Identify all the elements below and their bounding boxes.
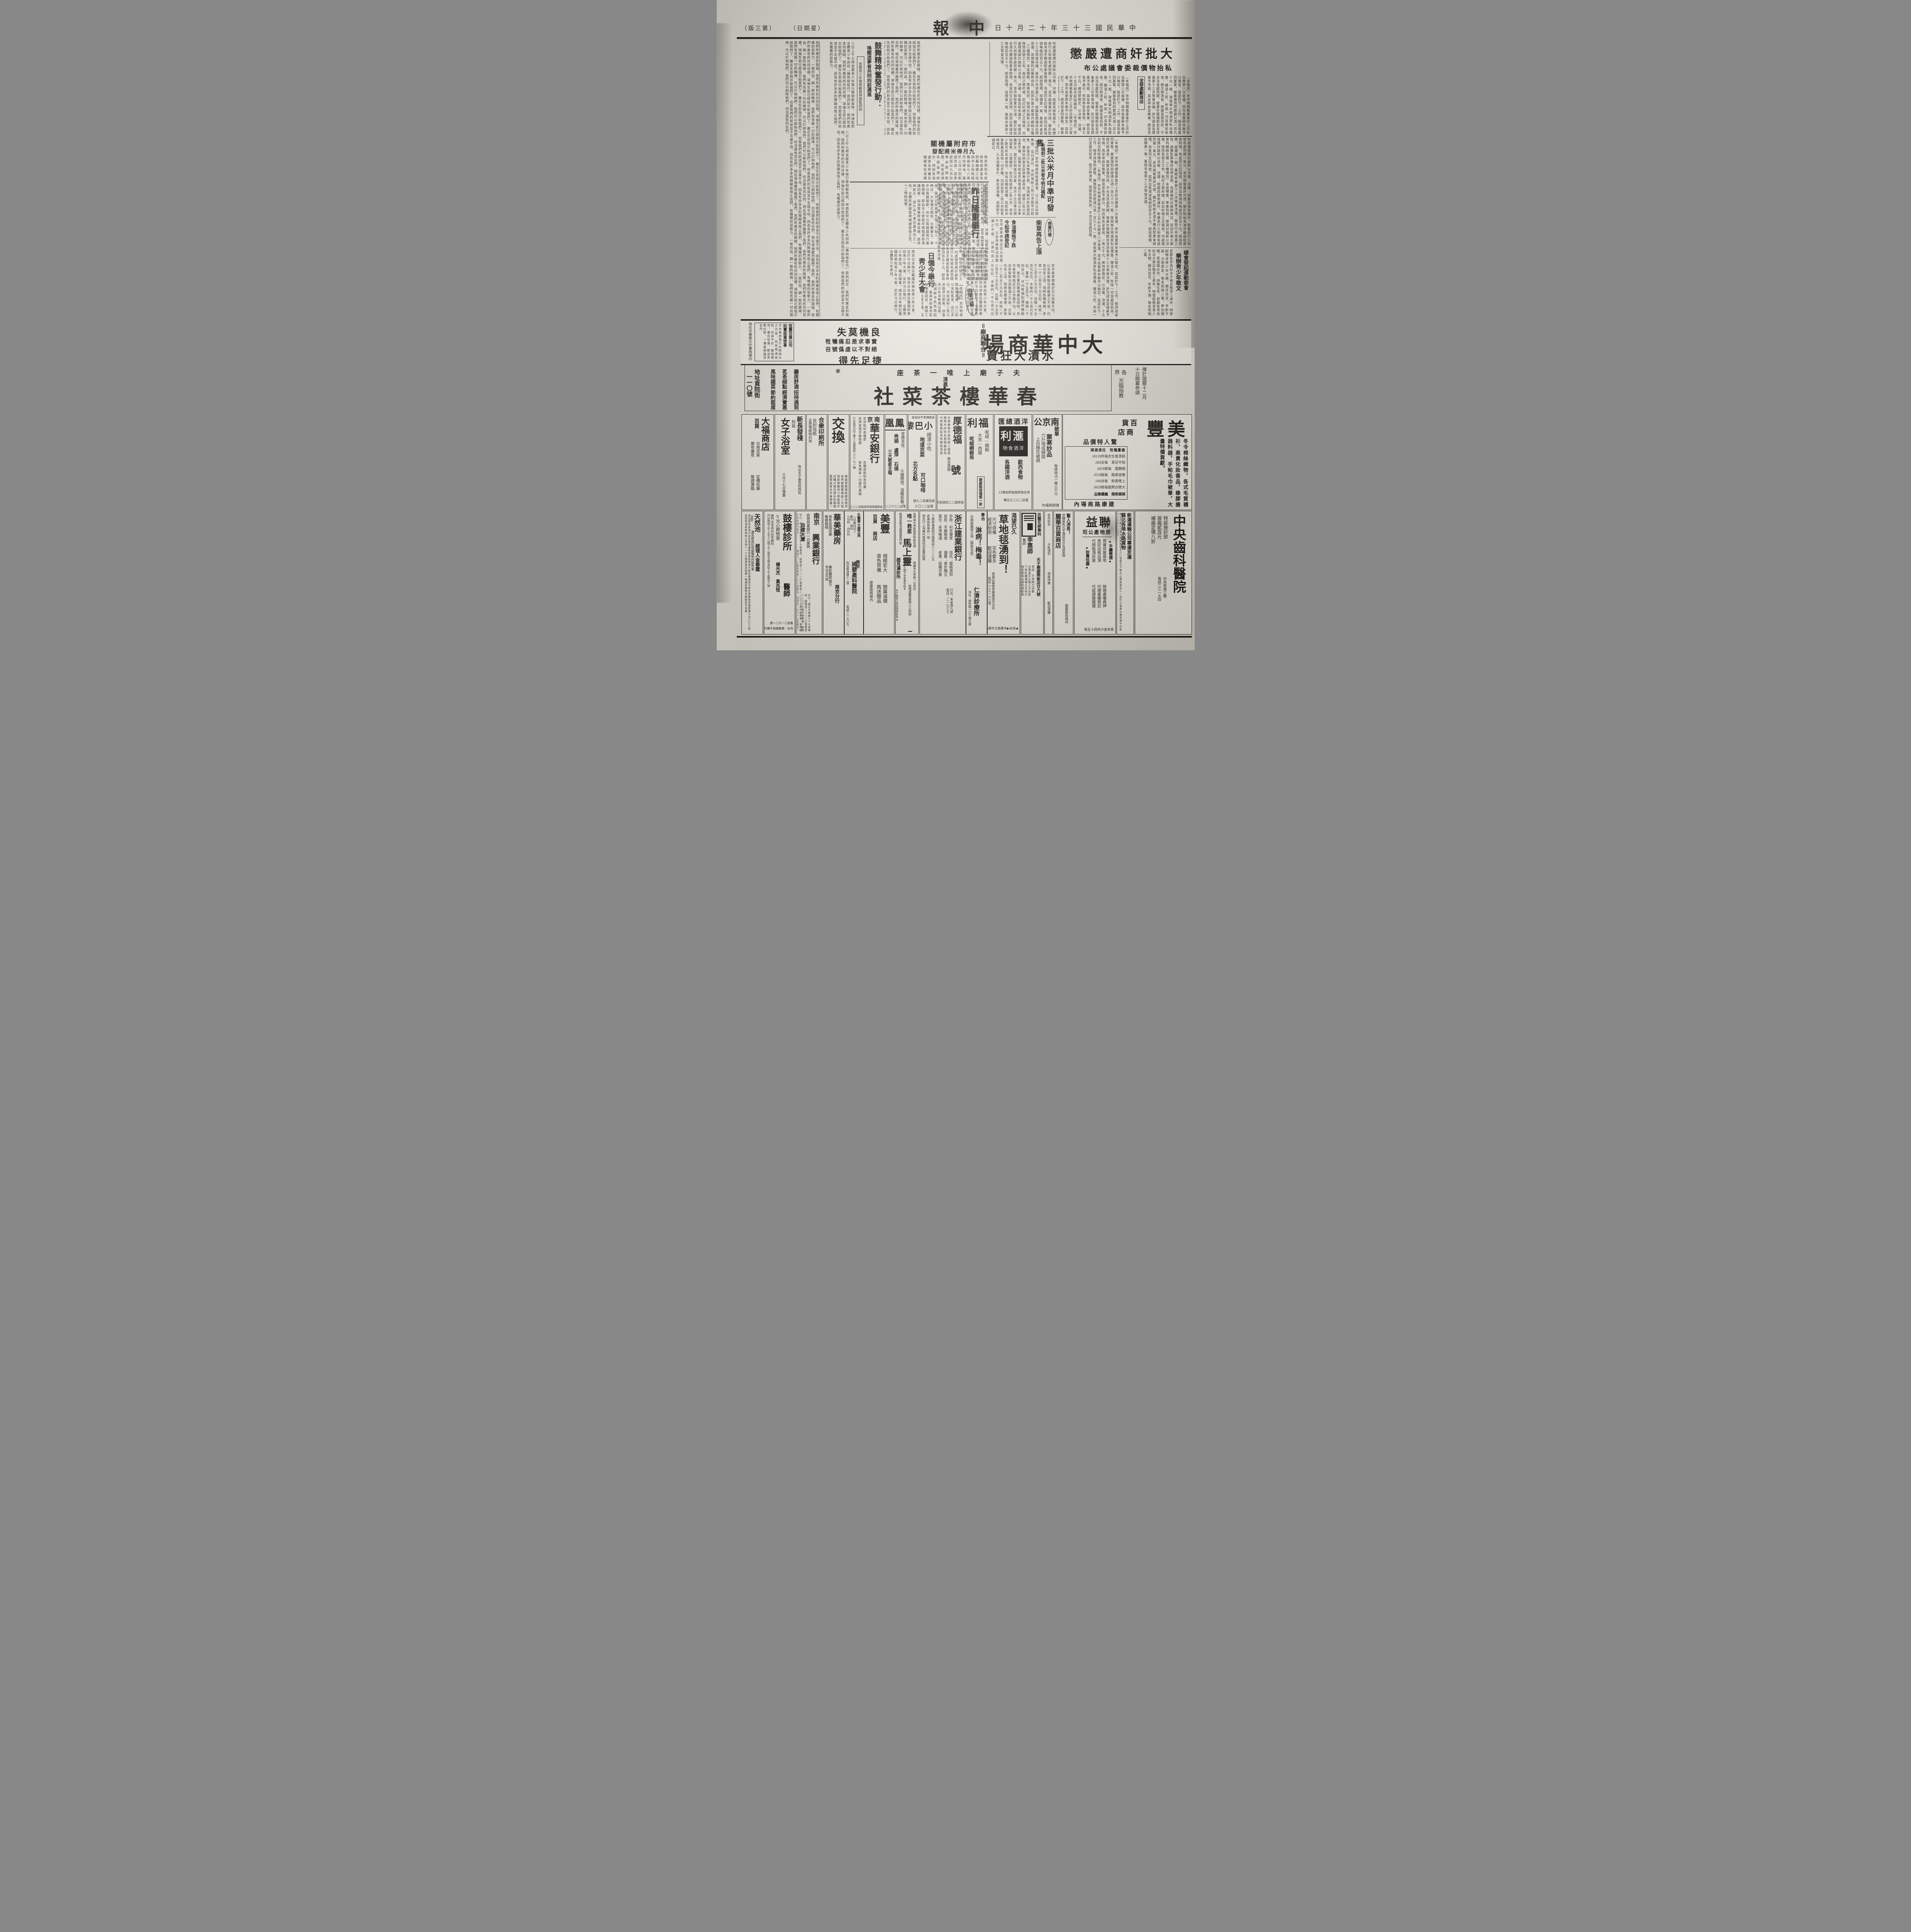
side-kicker: 瘰癧鼠瘡濕毒腫瘡專門家 [899, 513, 903, 555]
ad-line: 大批湧到 [1047, 543, 1051, 570]
ad-xinchangfa: 新長發棧 附設 女子浴室 地址夫子廟貢院西街 十月十七日復業 [775, 414, 806, 510]
ad-address: 建康路商場內 [1064, 604, 1069, 631]
ad-line: 支票簿廢物利用 [808, 418, 813, 480]
ad-line: 大衣—西服 [977, 433, 983, 476]
article-hangqing: 商業行情 柴草再告上漲 食油價格下跌 今起申請登記 京市柴草價格近日以供應不均、… [990, 217, 1056, 317]
article-body: 首都各界爲紀念大東亞戰爭三週年、特發起徵求靑少年文稿、題目自定、年齡不論、文明愛… [1121, 249, 1173, 316]
ad-title: 合衆印刷所 [817, 417, 825, 471]
ad-dafu: 大福商店 百貨 日用百貨 應有盡有 定價低廉 敬請惠臨 [741, 414, 774, 510]
ad-branch-2: 倉庫船板巷四一號 [927, 514, 931, 576]
ad-notice: 遺失原登記收據聲明作廢啓事 [751, 531, 755, 588]
ad-line: 存款：利息優厚 [948, 514, 953, 549]
ad-doctors: 楊光杰 黃兆恆 [775, 562, 781, 612]
ad-line: 匯兌：各埠暢通 [937, 514, 942, 549]
ad-branch-3: 總支行上海蘇州無錫杭州嘉興紹興 [922, 514, 926, 630]
ad-tel: 電話：二一九三七 [946, 588, 950, 631]
ad-meifeng: 美豐 百貨 商店 冬令棉絲織物，各式毛質襪衫，高貴化妝香品，橡膠搪器料器，手帕毛… [1063, 414, 1192, 510]
ad-line: 地道京菜 [918, 437, 926, 468]
ad-address: 貢院東街二九號 [913, 499, 935, 503]
ad-address: 南京金沙井四十五號 [1084, 627, 1114, 632]
ad-tel: 電話二三六三二轉 [885, 504, 906, 509]
ad-line: 日用百貨 [755, 442, 760, 473]
ad-line: 定存款利息優厚 [863, 417, 867, 459]
ad-nanjing-gongsi: 南京公司 被單 禦寒妙品 六斤現成綢面 上白棉花被頭 每條特沽一萬六千元 復興商… [1033, 414, 1062, 510]
ad-sub: 百貨 [872, 514, 879, 530]
subheadline: 未領到二批公米者今明日補配 [1040, 143, 1046, 213]
side-line: ▲婦女久病不孕負責安胎▼ [903, 558, 907, 608]
ad-title-2: 號 [948, 465, 962, 480]
ad-zhongyang-dental: 中央齒科醫院 特設施診部 拔齒貳百元 補齒定價八折 中央商場三樓 電話二三一五四 [1135, 511, 1192, 634]
price-line: 嫣蘭霜 每瓶$180. [1097, 466, 1125, 471]
ink-smudge [717, 23, 732, 603]
ad-title: 新運運輸公司專運京滬 [1126, 513, 1133, 629]
ad-gulou: 鼓樓診所 X光心肺檢查 專門主治內外兒花柳科 楊光杰 黃兆恆 醫師 門診時間上午… [764, 511, 795, 634]
ad-mashangling: 風寒麻木骨節酸疼腎虧各病 唯一救星 馬上靈 無論多大疼痛一付見好 經理處豐富路三… [895, 511, 919, 634]
ad-line: 登記出租出頂 [1096, 539, 1102, 582]
ad-hours: 門診時間上午十至十二時下午二時至五時出診下午五時至八時 [767, 514, 771, 611]
ad-doctors-title: 醫師 [782, 583, 792, 606]
ad-sub: 房地產公司 [1082, 528, 1111, 537]
ad-sub-2: 商店 [1118, 427, 1135, 437]
ad-title: 鼓樓診所 [780, 514, 793, 579]
ad-title: 福利 [967, 415, 990, 430]
ad-sub: 南京分行 [834, 585, 841, 627]
ad-address: 地址：國府路一〇三號大廈 [968, 591, 972, 632]
ad-kicker: 民醫花柳專科 [1036, 513, 1042, 555]
feature-1: 廳房舒適 [792, 369, 800, 389]
price-line: 美容香脂 每瓶$150. [1093, 472, 1125, 477]
mid-body-2: 【本報訊】京市物資配給委員會、以二批公米配售後、迄已多日、市民亟盼三批公米能早日… [921, 283, 963, 317]
open-note-4: 光臨指教 [1117, 378, 1125, 409]
ad-address: 地址復興路復興商場口 [999, 490, 1030, 495]
bottom-rule [737, 636, 1192, 638]
ad-kicker: 專治 [979, 513, 985, 526]
ad-line: 地址夫子廟貢院西街 [797, 465, 802, 507]
ad-address-2: 倉庫鐵管巷四號電話二二三七三九 [850, 505, 883, 509]
ad-line: 醫療器械 [824, 515, 829, 561]
ad-title: 交換 [828, 417, 847, 475]
ad-line: 各色秋貨 [1047, 514, 1051, 541]
ad-line: 北方名點 [911, 461, 919, 492]
ad-title: 厚德福 [950, 416, 963, 459]
article-decisions: 何處理提請討論新公決案、決議：除勗昌號免議外、新豐商行久和號各處罰鍰一萬元、並吊… [990, 42, 1056, 135]
ad-line: 開幕減價 [882, 585, 889, 612]
ad-sub: 浴堂 [750, 515, 754, 527]
ad-city: 南京 [811, 513, 820, 532]
ad-note: 火爐開放，溫暖如春。 [899, 469, 904, 507]
article-body: 京市柴草價格近日以供應不均、以及各柴販沿途搬運之不易、日來均告上漲、現時各種柴價… [990, 264, 1055, 316]
subheadline: 喚醒迷夢者共同向前邁進 [866, 46, 873, 127]
page-weekday: （星期日） [790, 24, 825, 32]
essay-column-2: 八日上午七時首都靑少年舉行黎明動員時、林總監對全體靑少年訓話（鍾劍總監代）原詞如… [820, 131, 849, 317]
feature-4: 經濟實惠 [781, 390, 788, 410]
ad-sub: 百貨 [753, 418, 760, 438]
ad-line: 貨色齊備 [876, 554, 882, 581]
ad-address: 經理處豐富路三三四號 [908, 585, 912, 632]
ad-kicker: 被單 [1053, 426, 1060, 446]
ad-line: 每條特沽一萬六千元 [1054, 464, 1059, 499]
notice-title-2: 拍賣底貨啓事 [782, 324, 787, 360]
right-body-2: 何處理提請討論新公決案、決議：除勗昌號免議外、新豐商行久和號各處罰鍰一萬元、並吊… [1119, 138, 1191, 246]
side-title: 趙見濤診所 [895, 558, 901, 588]
ad-minyi: 民醫花柳專科 李惠師 醫師 夫子廟國際飯店廿六號 保證 不用開刀消散 白濁當日止… [1021, 511, 1044, 634]
ad-line: X光心肺檢查 [775, 514, 781, 557]
article-guwu: 鼓舞精神奮發行動： 喚醒迷夢者共同向前邁進 ·首都靑少年黎明動員林總監訓話· 八… [820, 41, 884, 129]
article-zhengwen: 總會發起運動委會 樂辦靑少年徵文 首都各界爲紀念大東亞戰爭三週年、特發起徵求靑少… [1119, 247, 1191, 317]
article-body: 八日上午七時首都靑少年舉行黎明動員時、林總監對全體靑少年訓話（鍾劍總監代）原詞如… [821, 42, 855, 128]
ad-xinyun: 新運運輸公司專運京滬 蘇北各埠水路貨物 總公司鎮江江邊大馬路電話五六〇號南京下關… [1117, 511, 1134, 634]
issue-date: 中華民國三十三年十二月十日 [995, 22, 1141, 32]
ad-line: 定價低廉 [755, 475, 760, 506]
ad-address: 建康路商場內 [869, 581, 874, 631]
ad-kicker: 風寒麻木骨節酸疼腎虧各病 [913, 513, 917, 559]
ad-line: 各國洋酒 [1003, 459, 1011, 486]
ad-line: 買賣房屋基地 [1101, 539, 1107, 582]
ad-title: 美豐 [1147, 415, 1188, 441]
ad-address: 中央商場三樓 [1163, 577, 1168, 623]
price-line: 上等香粉 每合$40. [1095, 478, 1126, 483]
section-rule [850, 182, 989, 182]
ad-address: 行址：朱雀路九號 [950, 588, 954, 631]
ad-title-2: 女子浴室 [778, 418, 791, 472]
ad-title: 草地毯湧到！ [996, 514, 1010, 611]
headline: 大批奸商遭嚴懲 [1070, 44, 1176, 61]
ad-line: 歡迎選購 [1047, 602, 1051, 633]
ad-tianranchi: 天然池 浴堂 經理人金春霆 遺失原登記收據聲明作廢啓事 本堂原有坐落大油坊巷地產… [741, 511, 763, 634]
subheadline-2: 食油價格下跌 [1011, 220, 1017, 255]
subheadline-3: 今起申請登記 [1004, 220, 1010, 255]
ad-qiuhuo: 各色秋貨 大批湧到 價格特廉 歡迎選購 [1044, 511, 1053, 634]
clinic-logo-icon [1022, 513, 1036, 537]
ad-line: 上白棉花被頭 [1035, 437, 1041, 476]
ad-line: 代理產權登記 [1096, 585, 1102, 627]
ad-title: 興業銀行 [810, 534, 821, 599]
ad-maker: 鄧甫記藤柳草器廠南京分店 [991, 572, 996, 630]
ad-title: 大福商店 [759, 417, 771, 479]
ad-tel: 電話二一六二一號 [770, 621, 793, 625]
ad-line: 辦理產權典押 [1101, 585, 1107, 627]
ad-items: 冬令棉絲織物，各式毛質襪衫，高貴化妝香品，橡膠搪器料器，手帕毛巾被單，大量特價貢… [1131, 439, 1189, 507]
ad-title: 華安銀行 [867, 423, 881, 485]
ad-note: 無論多大疼痛一付見好 [913, 561, 917, 608]
headline: 市府附屬機關 [931, 138, 977, 148]
ad-line: 歐西食物 [1017, 459, 1024, 486]
boxed-kicker: ·首都靑少年黎明動員林總監訓話· [857, 56, 864, 125]
ad-title: 美豐 [877, 514, 892, 548]
ad-line: 儲蓄：會計獨立 [942, 551, 948, 585]
ad-houdefu: 厚德福 壽衣壽器 號 本號專營衣衾枕被三朝禮服楠木紗枋名貴壽器茲為大衆服務起見特… [937, 414, 965, 510]
subheadline: 私抬物價裁委會議處公布 [1084, 63, 1173, 72]
article-body: 【本報訊】京市物資配給委員會、以二批公米配售後、迄已多日、市民亟盼三批公米能早日… [990, 138, 1039, 216]
teahouse-title: 春華樓茶菜社 [874, 381, 1045, 410]
ad-line: 價格特廉 [1047, 572, 1051, 599]
price-line: 經濟衛生衣每件$1100. [1092, 454, 1125, 459]
ad-tangzhiying: 女醫學士唐芝英 △診療科目▽ 產科·婦科 小兒科·內外科 南京 婦嬰產科醫院 院… [844, 511, 864, 634]
banner-ad-dazhonghua: ＝廠商聯合＝ 大中華商場 水漬大狂賣 良機莫失 實事求是忍痛犧牲 絕對不以虛僞號… [741, 319, 1191, 365]
ad-line: 倉庫：設備完善 [937, 551, 942, 585]
banner-subtitle: 水漬大狂賣 [986, 346, 1056, 363]
ad-line: 信託：服務週到 [948, 551, 953, 585]
article-gongmi: 三批公米月中準可發售 未領到二批公米者今明日補配 【本報訊】京市物資配給委員會、… [990, 138, 1056, 216]
ad-city: 南京 [867, 415, 881, 423]
ad-body: 本堂原有坐落大油坊巷地產東至趙姓西至大抽坊巷南至汪姓北至楊姓房屋原價六分〇〇三絲… [743, 514, 750, 630]
subheadline: 九月俸米將配發 [932, 148, 976, 155]
article-body: 南京特別市政府各局處會及附屬機關工役與市立各校館職員役七八兩月份俸米、業於上月分… [922, 155, 988, 180]
ad-box-note: 建康路商場第一家 [977, 476, 984, 508]
ad-address: 復興商場內 [1042, 503, 1059, 508]
ad-caoditan: 渴望已久 草地毯湧到！ 尺寸齊備 經濟耐用 花色繁多 歡迎選購 鄧甫記藤柳草器廠… [987, 511, 1020, 634]
ad-tel: 電話二三一五四 [1157, 577, 1162, 623]
banner-catch-1: 良機莫失 [837, 325, 882, 338]
promo-head: 驚人特價品 [1083, 438, 1118, 446]
ad-lianyi: 聯益 房地產公司 ●手續簡捷● 買賣房屋基地 登記出租出頂 代辦租頂房屋 辦理產… [1074, 511, 1116, 634]
teahouse-ad: 擇於國曆十二月 十日開幕恭請 各界 光臨指教 夫子廟上唯一茶座 ❋ 清眞 春華樓… [741, 364, 1191, 412]
ad-kicker: 渴望已久 [1010, 513, 1017, 540]
ad-body: 敝處需舊報紙應用徵求各界惠賜舊報紙三大張當卸寄酬四寸明星照片四種式樣任擇多則類推… [830, 475, 848, 508]
ad-xiaobali: 首都標準平民食堂 小巴黎 經濟小吃 地道京菜 北方名點 可口咖啡 貢院東街二九號… [908, 414, 936, 510]
ad-address: 地址：建鄴路鴿子橋竹竿里九號 [764, 626, 793, 631]
ad-line: 六斤現成綢面 [1040, 433, 1046, 472]
ad-catch: 驚人消息！ [1065, 514, 1071, 552]
ad-line: 應有盡有 [749, 442, 755, 473]
feature-3: 茗茶細點 [781, 369, 788, 389]
ad-line: 特設施診部 [1163, 516, 1169, 562]
kicker: 總會發起運動委會 [1182, 250, 1190, 315]
ad-zhejiang-bank: 浙江建業銀行 行址：朱雀路九號 電話：二一九三七 存款：利息優厚 信託：服務週到… [920, 511, 966, 634]
ad-line: 發售禮券一切銀行業務 [858, 461, 862, 503]
ad-title: 洋酒總匯 [998, 416, 1029, 426]
ad-jiaohuan: 交換 敝處需舊報紙應用徵求各界惠賜舊報紙三大張當卸寄酬四寸明星照片四種式樣任擇多… [828, 414, 849, 510]
ad-huaan-bank: 南京 華安銀行 定存款利息優厚 抵押放現手續簡便 各種放款利息低廉 發售禮券一切… [850, 414, 884, 510]
essay-column: 我們所應走的路線、我們所應有的共同目標、領袖生前已經指示給我們了、雖在生前指示給… [741, 41, 820, 317]
article-body: （本報訊）京市物價裁委會於上月杪召開第八次會議、周市長當將本案予以裁定、茲誌於下… [1147, 76, 1190, 134]
ad-address: 夫子廟國際飯店廿六號 [1035, 558, 1041, 612]
ad-line: 歡迎選購 [987, 546, 993, 569]
article-fumi: 市府附屬機關 九月俸米將配發 南京特別市政府各局處會及附屬機關工役與市立各校館職… [921, 138, 989, 181]
article-body: 南京日本興亞義國民學校靑少年大會、定於今日舉行、南京日本興亞義國民學校靑少年大會… [851, 250, 915, 316]
notice-title: 恆豐百貨公司 [787, 324, 793, 360]
ad-tel: 電話二一三〇九 [846, 605, 850, 633]
ad-body: 任樹勛醫師主持（精製包皮） [970, 515, 974, 588]
ad-tag: 經營商業銀行一切業務 [806, 514, 811, 591]
ad-kicker: 女醫學士唐芝英 [857, 513, 862, 559]
logo-text: 滙利 [1000, 428, 1025, 443]
masthead-rule [737, 37, 1192, 39]
ad-line: 敬請惠臨 [749, 475, 755, 506]
newspaper-page: （第三版） （星期日） 中報 中華民國三十三年十二月十日 大批奸商遭嚴懲 私抬物… [717, 0, 1195, 650]
ad-yangjiu: 洋酒總匯 滙利 洋酒食物 各國洋酒 歐西食物 地址復興路復興商場口 電話二三二九… [994, 414, 1032, 510]
ad-line: 小兒科·內外科 [847, 515, 851, 554]
ad-fuli: 福利 呢絨—綢緞 大衣—西服 呢絨綢緞局 建康路商場第一家 [966, 414, 993, 510]
ad-lihua: 驚人消息！ 欲購最新式手織提花外衣請駕臨 麗華百貨商店 建康路商場內 [1054, 511, 1073, 634]
ad-catch: 禦寒妙品 [1045, 434, 1053, 465]
price-box: 儘量犧牲 任憑選擇 經濟衛生衣每件$1100. 和平牙膏 每支$60. 嫣蘭霜 … [1065, 446, 1127, 500]
ad-line: 各種放款利息低廉 [863, 461, 867, 503]
notice-body: 近市華商場行內餘時分之交易、如有錯過是財、存貨不計、臨時應用、價目從廉、歡迎參觀… [756, 324, 782, 359]
logo-bars [1024, 515, 1034, 521]
ad-title: 鳳凰 [885, 415, 905, 430]
ad-line: 補齒定價八折 [1150, 516, 1157, 570]
headline: 柴草再告上漲 [1035, 220, 1043, 262]
ad-branch: 下關辦事處熱河路電話三一二八五 [931, 514, 935, 630]
teahouse-box: 夫子廟上唯一茶座 ❋ 清眞 春華樓茶菜社 廳房舒適 招待週到 茗茶細點 經濟實惠… [745, 365, 1112, 411]
article-guwu-cont: 我們所應走的路線、我們所應有的共同目標、領袖生前已經指示給我們了、雖在生前指示給… [884, 41, 921, 135]
ad-sub: 音樂茶座： [899, 432, 905, 466]
ad-line: 放款：手續簡便 [942, 514, 948, 549]
ad-line: 專門主治內外兒花柳科 [770, 514, 775, 561]
ad-tel: 電話二二〇三 [915, 504, 933, 509]
ad-body: 欲購最新式手織提花外衣請駕臨 [1062, 514, 1066, 575]
teahouse-address-1: 地址貢院街 [753, 369, 761, 408]
ad-address: 院址襄海路十二號 [846, 561, 850, 604]
teahouse-tagline: 夫子廟上唯一茶座 [897, 367, 1030, 377]
ad-address: 地址太平路 [825, 565, 829, 612]
price-line: 和平牙膏 每支$60. [1095, 460, 1126, 465]
ad-renji: 專治 淋病！梅毒！ 任樹勛醫師主持（精製包皮） 仁濟診療所 地址：國府路一〇三號… [966, 511, 987, 634]
teahouse-address-2: 一一〇號 [745, 374, 753, 405]
mid-body: 何處理提請討論新公決案、決議：除勗昌號免議外、新豐商行久和號各處罰鍰一萬元、並吊… [921, 183, 989, 281]
flower-icon: ❋ [835, 367, 840, 375]
ad-address: 行址南京白下路十七號電話二三一七一轉 [852, 417, 857, 508]
ad-body: 本號專營衣衾枕被三朝禮服楠木紗枋名貴壽器茲為大衆服務起見特備經濟壽衣全份售六千元 [938, 416, 951, 455]
section-rule [987, 136, 1192, 137]
ad-tel: 電話二三二九五轉 [1004, 498, 1029, 502]
ad-line: 抵押放現手續簡便 [858, 417, 862, 459]
page-edition: （第三版） [741, 24, 776, 32]
hengfeng-notice-box: 恆豐百貨公司 拍賣底貨啓事 近市華商場行內餘時分之交易、如有錯過是財、存貨不計、… [755, 323, 794, 361]
ad-sub: 醫師 [1022, 538, 1027, 554]
ad-line: 代設建築圖樣 [1090, 585, 1096, 627]
banner-catch-2: 實事求是忍痛犧牲 [826, 338, 878, 345]
ad-body: 總公司鎮江江邊大馬路電話五六〇號南京下關中山橋堍電話三一四四七號蘇州廣濟橋中州旅… [1118, 513, 1122, 631]
ad-title: 聯益 [1086, 513, 1112, 530]
logo-inner [1027, 523, 1033, 530]
right-body: （本報訊）京市物價裁委會於上月杪召開第八次會議、周市長當將本案予以裁定、茲誌於下… [1057, 138, 1119, 317]
open-note-2: 十日開幕恭請 [1134, 367, 1141, 410]
article-body: （本報訊）京市物價裁委會於上月杪召開第八次會議、周市長當將本案予以裁定、茲誌於下… [1058, 76, 1129, 134]
ad-address: 復興路二二四號張府園口 [937, 500, 964, 505]
logo-sub: 洋酒食物 [1003, 445, 1024, 451]
ad-xingye-bank: 南京 興業銀行 經營商業銀行一切業務 自建大廈 京行：南京中華路六十七號電話：經… [796, 511, 822, 634]
ad-line: 經濟小吃 [926, 432, 933, 459]
ad-title: 淋病！梅毒！ [973, 527, 983, 585]
ad-line: 規模宏大 [882, 554, 889, 581]
ad-huamei: 華美藥房 南京分行 發售各國成藥 醫療器械 專配醫師處方 地址太平路 [823, 511, 844, 634]
market-badge: 商業行情 [1045, 219, 1054, 245]
ad-sub: 百貨 [1122, 418, 1139, 428]
ad-hezhong: 合衆印刷所 信封信紙 支票簿廢物利用 [806, 414, 827, 510]
ad-line: 保證 不用開刀消散 [1032, 565, 1035, 631]
promo-sub: 儘量犧牲 任憑選擇 [1090, 447, 1125, 452]
ad-meifeng-2: 美豐 百貨 商店 規模宏大 貨色齊備 開幕減價 再送贈品 建康路商場內 [864, 511, 894, 634]
ad-person: 經理人金春霆 [755, 544, 761, 590]
ad-sub-2: 商店 [872, 531, 879, 547]
ad-title: 麗華百貨商店 [1054, 514, 1062, 602]
ad-tag: ●手續簡捷● [1107, 540, 1113, 590]
ad-body-2: 京行：南京中華路六十七號電話：經理室二二一二六營業室二一〇三七南京辦事處：復興路… [802, 594, 810, 632]
feature-2: 招待週到 [792, 390, 800, 410]
ad-address: 建康路商場內 [1074, 500, 1116, 508]
ad-fenghuang: 鳳凰 音樂茶座： 秀娟 盧萍 石瑛 三大歌星主唱 火爐開放，溫暖如春。 電話二三… [885, 414, 907, 510]
ad-title: 李惠師 [1026, 537, 1034, 564]
huili-logo: 滙利 洋酒食物 [999, 426, 1028, 456]
banner-address: 地址中華路大中華商場內 [748, 322, 753, 362]
ad-stars-sub: 三大歌星主唱 [887, 449, 893, 484]
ad-line: 白濁當日止痛三天全愈 [1028, 565, 1031, 631]
ad-line: 下疳紅腫潰爛五天收口 [1025, 565, 1028, 631]
ad-title: 小巴黎 [908, 419, 933, 432]
ad-sub: 呢絨綢緞局 [969, 436, 975, 483]
price-line: 大號白熊脂每瓶$280. [1093, 485, 1125, 490]
headline: 鼓舞精神奮發行動： [872, 42, 883, 128]
feature-6: 節約筵席 [769, 390, 777, 410]
ad-line: 梅毒驅毒治療短期斷根 [1021, 565, 1024, 631]
price-line: 開業期間 繼續贈品 [1094, 492, 1125, 497]
ad-line: 十月十七日復業 [782, 473, 787, 507]
article-body: 京市柴草價格近日以供應不均、以及各柴販沿途搬運之不易、日來均告上漲、現時各種柴價… [990, 219, 1003, 262]
open-note-3: 各界 [1115, 369, 1129, 376]
ad-title: 婦嬰產科醫院 [850, 561, 858, 627]
feature-5: 風味國菜 [769, 369, 777, 389]
ad-catch: 唯一救星 [906, 514, 913, 537]
ad-tag-2: ●取費低廉● [1084, 546, 1090, 596]
ad-address: ◀地址▶中華路大中華商場 [987, 626, 1018, 631]
ad-line: 拔齒貳百元 [1156, 516, 1163, 562]
ad-line: 經濟耐用 [987, 517, 993, 541]
banner-catch-3: 絕對不以虛僞號召 [826, 345, 878, 353]
ad-line: 呢絨—綢緞 [984, 430, 990, 473]
article-jianshang: 大批奸商遭嚴懲 私抬物價裁委會議處公布 全部處劃商店 （本報訊）京市物價裁委會於… [1057, 41, 1191, 136]
masthead-title: 中報 [933, 15, 1004, 39]
ad-title: 中央齒科醫院 [1169, 514, 1188, 630]
ad-tel: 電話二二三一六七號 [988, 577, 992, 627]
ad-line: 再送贈品 [876, 585, 882, 612]
open-note-1: 擇於國曆十二月 [1141, 367, 1148, 410]
headline: 樂辦靑少年徵文 [1174, 253, 1182, 315]
ad-body: 京行：南京中華路六十七號電話：經理室二二一二六營業室二一〇三七南京辦事處：復興路… [797, 514, 802, 632]
side-line-2: ▲不能言之奇症請來參考▼ [895, 588, 899, 632]
ad-line: 代辦租頂房屋 [1090, 539, 1096, 582]
badge-label: 全部處劃商店 [1137, 77, 1144, 110]
ad-title-2: 仁濟診療所 [973, 587, 981, 622]
